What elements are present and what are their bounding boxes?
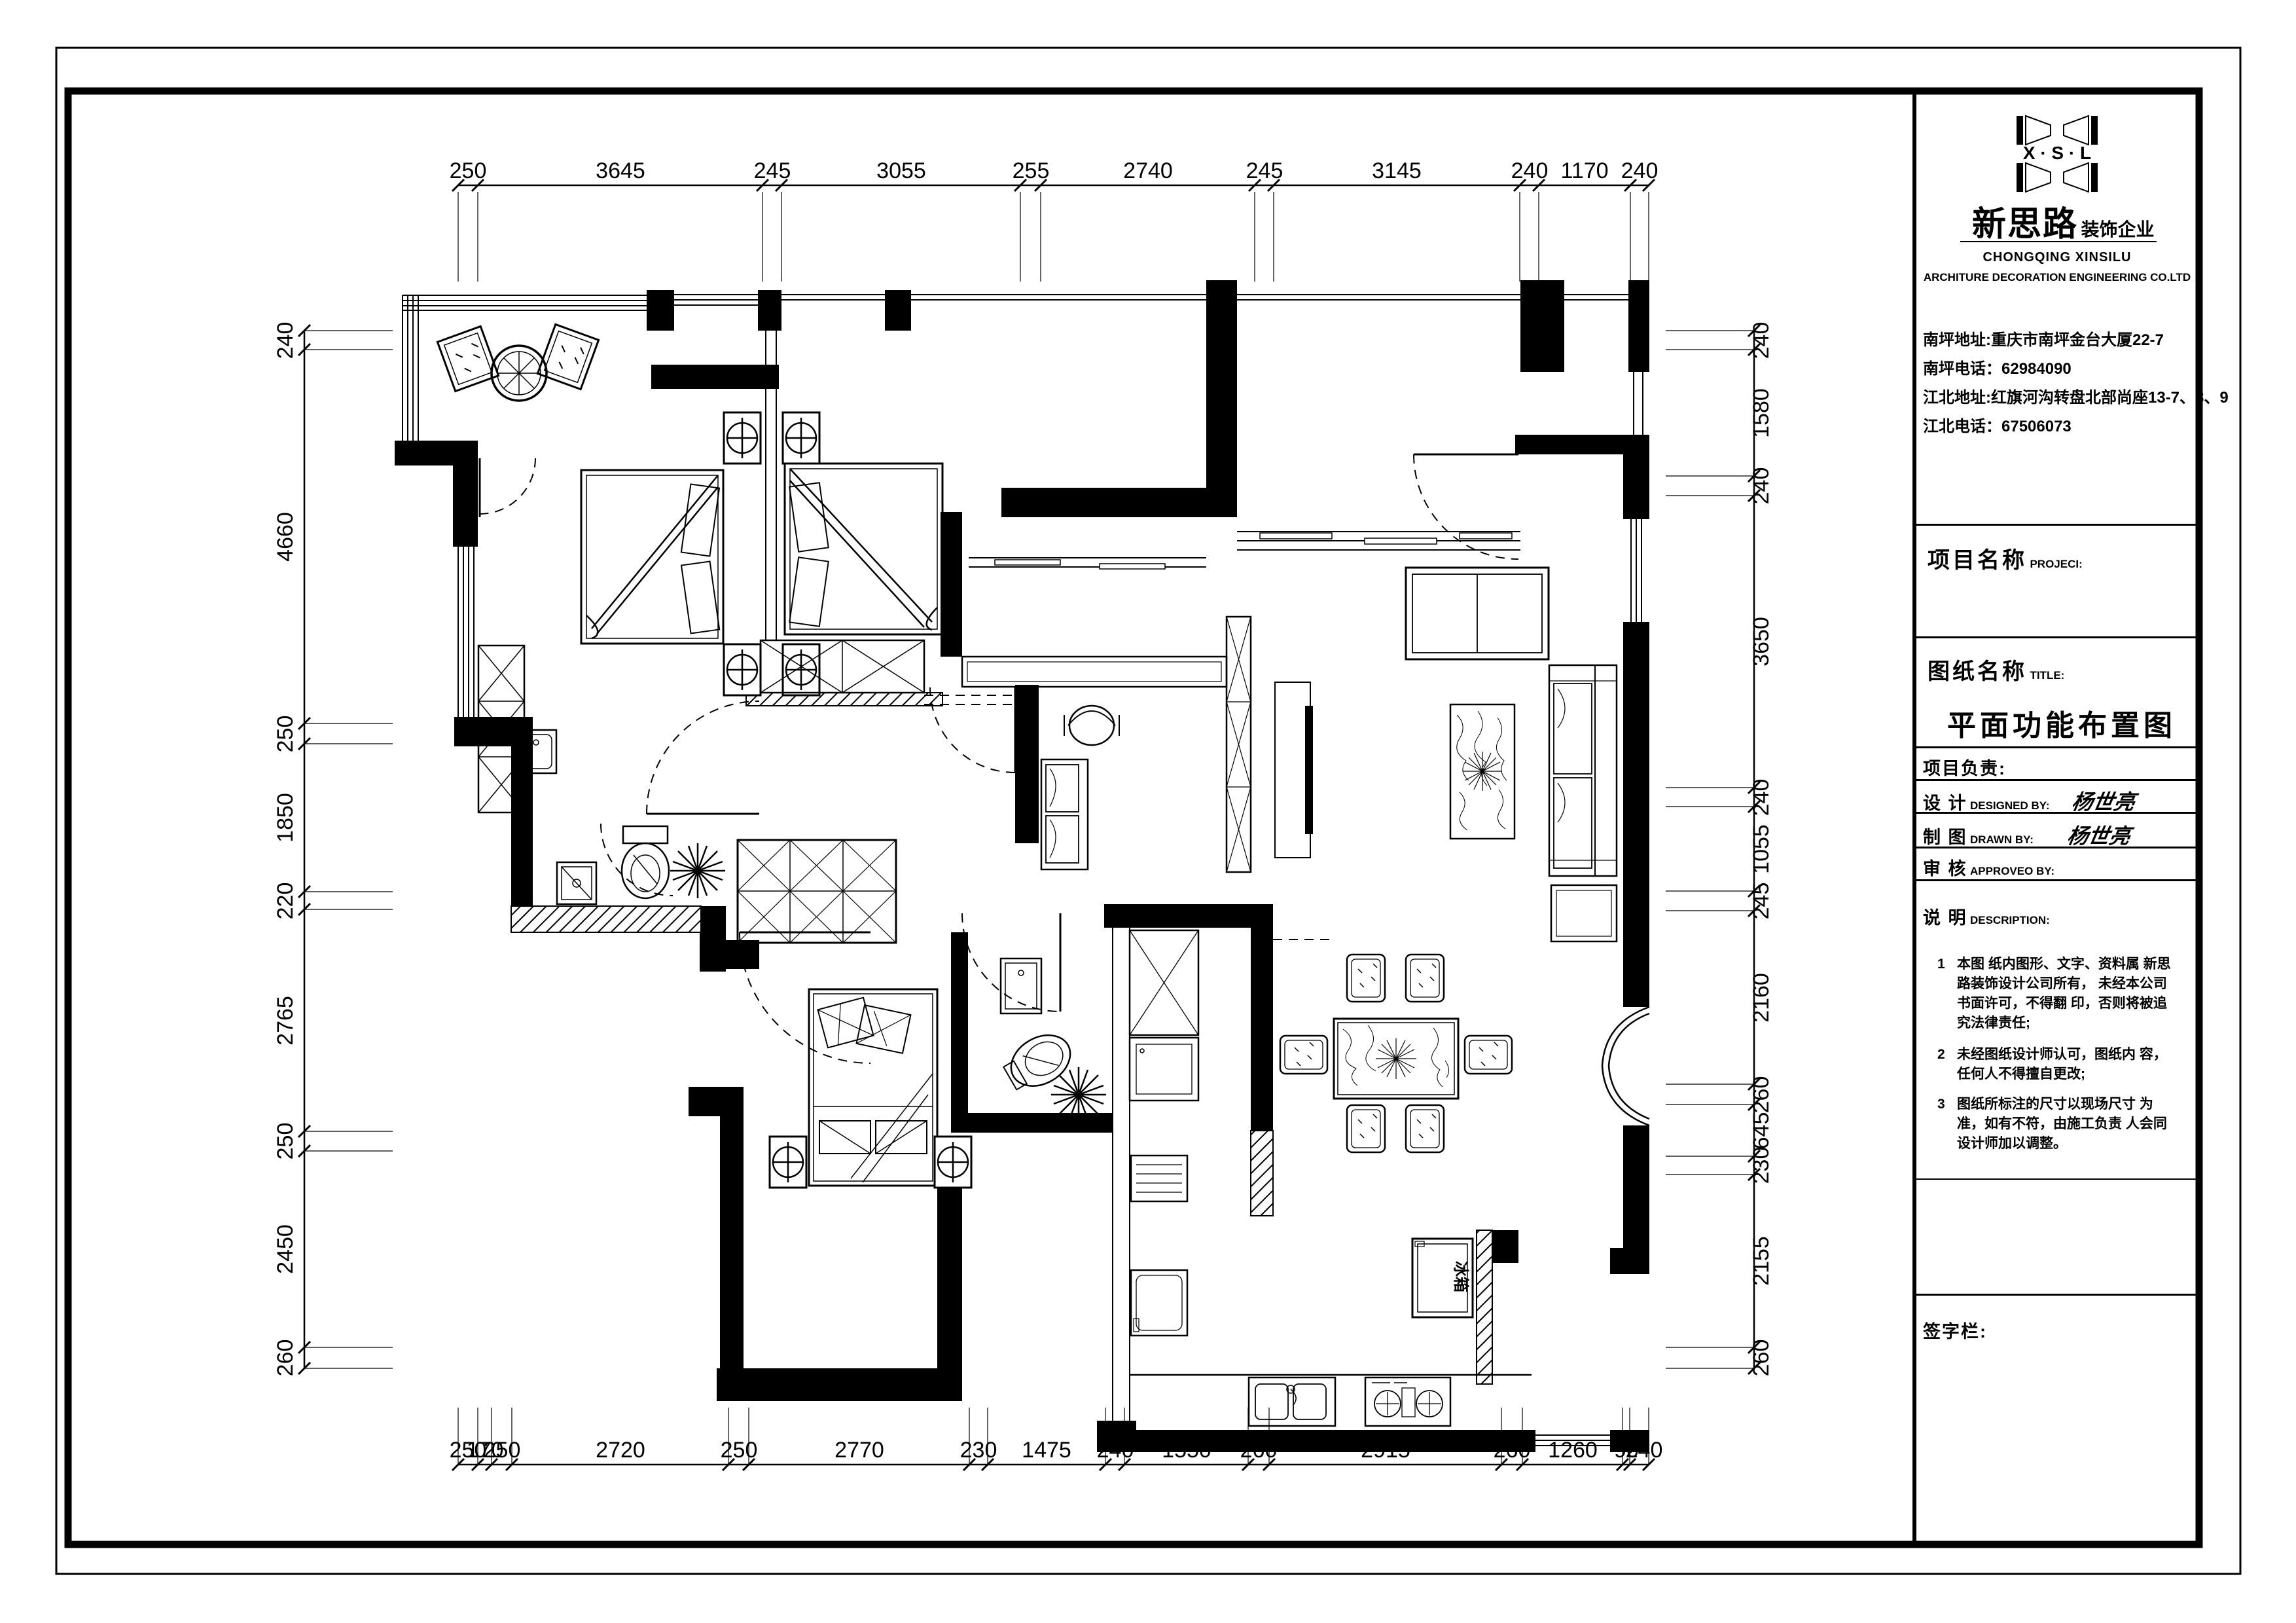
dim-right-6: 245 — [1749, 883, 1774, 920]
dim-right-1: 1580 — [1749, 388, 1774, 438]
kitchen-cabinets — [1130, 930, 1532, 1375]
dim-right-0: 240 — [1749, 322, 1774, 359]
description-header: 说 明 DESCRIPTION: — [1923, 903, 2050, 929]
dimension-text-top: 250 3645 245 3055 255 2740 245 3145 240 … — [450, 158, 1659, 183]
balcony-round-table — [492, 346, 547, 401]
corridor-closet — [738, 840, 896, 943]
dimension-text-left: 240 4660 250 1850 220 2765 250 2450 260 — [273, 322, 298, 1377]
drawn-label-en: DRAWN BY: — [1970, 833, 2034, 846]
dim-top-5: 2740 — [1123, 158, 1173, 183]
bed-1 — [581, 470, 723, 644]
dim-left-3: 1850 — [273, 793, 298, 843]
dim-right-9: 645 — [1749, 1112, 1774, 1150]
company-name-row: 新思路 装饰企业 — [1972, 196, 2154, 246]
bathroom1-shower — [557, 862, 596, 904]
xsl-logo-icon: X · S · L — [2005, 115, 2109, 193]
approved-label: 审 核 — [1923, 859, 1967, 879]
bathroom1-toilet — [622, 826, 669, 898]
dim-left-2: 250 — [273, 716, 298, 753]
dim-left-6: 250 — [273, 1123, 298, 1160]
description-note: 1 本图 纸内图形、文字、资料属 新思路装饰设计公司所有， 未经本公司书面许可，… — [1937, 955, 2178, 1033]
bed-2 — [785, 464, 942, 634]
fridge-label: 冰箱 — [1452, 1261, 1470, 1292]
note-number: 2 — [1937, 1045, 1957, 1084]
drawn-label: 制 图 — [1923, 828, 1967, 847]
living-sofa — [1549, 665, 1617, 876]
note-text: 图纸所标注的尺寸以现场尺寸 为准，如有不符，由施工负责 人会同设计师加以调整。 — [1957, 1095, 2178, 1154]
plant-icon — [670, 843, 725, 898]
description-note: 2 未经图纸设计师认可，图纸内 容，任何人不得擅自更改; — [1937, 1045, 2178, 1084]
dim-bot-13: 1260 — [1548, 1438, 1598, 1463]
dim-bot-4: 250 — [721, 1438, 758, 1463]
dim-right-4: 240 — [1749, 779, 1774, 816]
dim-bot-3: 2720 — [596, 1438, 645, 1463]
dim-right-2: 240 — [1749, 467, 1774, 505]
plant-icon — [1051, 1067, 1106, 1122]
dim-top-7: 3145 — [1372, 158, 1422, 183]
company-suffix-cn: 装饰企业 — [2081, 219, 2154, 240]
walls-hatched — [511, 693, 1492, 1384]
dim-top-10: 240 — [1621, 158, 1659, 183]
bathroom2-sink — [1001, 958, 1041, 1013]
contact-line: 南坪电话：62984090 — [1923, 356, 2072, 382]
signature-label: 签字栏: — [1923, 1317, 1987, 1343]
contact-line: 江北地址:红旗河沟转盘北部尚座13-7、8、9 — [1923, 385, 2229, 411]
dim-left-7: 2450 — [273, 1224, 298, 1274]
sofa-side-table — [1551, 885, 1617, 941]
company-name-cn: 新思路 — [1972, 206, 2078, 244]
tv-cabinet — [1275, 682, 1313, 858]
bathroom2-toilet — [999, 1025, 1079, 1099]
designed-label: 设 计 — [1923, 793, 1967, 813]
dim-left-4: 220 — [273, 883, 298, 920]
dim-bot-7: 1475 — [1022, 1438, 1071, 1463]
contact-line: 江北电话：67506073 — [1923, 414, 2072, 440]
designed-label-en: DESIGNED BY: — [1970, 799, 2050, 812]
dim-top-8: 240 — [1511, 158, 1549, 183]
dim-left-5: 2765 — [273, 996, 298, 1046]
nightstand — [724, 644, 761, 695]
tv-bookcase — [1227, 617, 1251, 872]
contact-line: 南坪地址:重庆市南坪金台大厦22-7 — [1923, 327, 2164, 354]
study-chair — [1064, 706, 1119, 745]
description-note: 3 图纸所标注的尺寸以现场尺寸 为准，如有不符，由施工负责 人会同设计师加以调整… — [1937, 1095, 2178, 1154]
sheet-border — [56, 48, 2240, 1574]
dim-right-5: 1055 — [1749, 824, 1774, 874]
dim-right-10: 230 — [1749, 1147, 1774, 1184]
drawing-sheet: 250 3645 245 3055 255 2740 245 3145 240 … — [0, 0, 2296, 1623]
dim-right-11: 2155 — [1749, 1236, 1774, 1286]
note-text: 本图 纸内图形、文字、资料属 新思路装饰设计公司所有， 未经本公司书面许可，不得… — [1957, 955, 2178, 1033]
dim-bot-5: 2770 — [834, 1438, 884, 1463]
dim-top-2: 245 — [754, 158, 791, 183]
description-label-en: DESCRIPTION: — [1970, 914, 2050, 926]
dim-bot-2: 250 — [484, 1438, 521, 1463]
kitchen-stove — [1365, 1377, 1450, 1426]
note-number: 3 — [1937, 1095, 1957, 1154]
study-desk — [962, 657, 1227, 687]
dim-right-3: 3650 — [1749, 617, 1774, 666]
nightstand — [783, 644, 819, 695]
drawn-row: 制 图 DRAWN BY: 杨世亮 — [1923, 820, 2130, 850]
xsl-initials: X · S · L — [2023, 143, 2091, 163]
drawing-title: 平面功能布置图 — [1947, 702, 2176, 744]
dim-top-3: 3055 — [876, 158, 926, 183]
dim-right-12: 260 — [1749, 1340, 1774, 1377]
balcony-chair-left — [437, 326, 498, 391]
project-row: 项目名称 PROJECI: — [1928, 542, 2083, 574]
living-rug — [1450, 704, 1515, 839]
dim-top-0: 250 — [450, 158, 487, 183]
dimension-text-right: 240 1580 240 3650 240 1055 245 2160 260 … — [1749, 322, 1774, 1377]
draftsman-name: 杨世亮 — [2065, 820, 2133, 850]
door-swings — [480, 454, 1518, 1063]
entry-cabinet — [1406, 568, 1549, 659]
bed-3 — [809, 989, 937, 1186]
approved-row: 审 核 APPROVEO BY: — [1923, 854, 2054, 880]
kitchen-sink — [1249, 1377, 1335, 1426]
company-name-en2: ARCHITURE DECORATION ENGINEERING CO.LTD — [1924, 271, 2191, 284]
company-name-en: CHONGQING XINSILU — [1982, 250, 2131, 265]
dim-top-4: 255 — [1013, 158, 1050, 183]
sheet-name-row: 图纸名称 TITLE: — [1928, 653, 2064, 685]
dim-bot-6: 230 — [960, 1438, 997, 1463]
note-text: 未经图纸设计师认可，图纸内 容，任何人不得擅自更改; — [1957, 1045, 2178, 1084]
nightstand — [935, 1137, 971, 1188]
dim-right-7: 2160 — [1749, 973, 1774, 1023]
dim-right-8: 260 — [1749, 1076, 1774, 1114]
dim-top-6: 245 — [1246, 158, 1283, 183]
dim-left-1: 4660 — [273, 512, 298, 562]
manager-label: 项目负责: — [1923, 754, 2006, 780]
dim-top-1: 3645 — [596, 158, 645, 183]
dim-top-9: 1170 — [1560, 158, 1608, 183]
dining-table — [1334, 1019, 1458, 1099]
dim-left-0: 240 — [273, 322, 298, 359]
study-loveseat — [1041, 759, 1088, 869]
sheet-name-label-en: TITLE: — [2030, 669, 2064, 682]
note-number: 1 — [1937, 955, 1957, 1033]
sheet-name-label: 图纸名称 — [1928, 659, 2027, 684]
project-label: 项目名称 — [1928, 548, 2027, 573]
project-label-en: PROJECI: — [2030, 558, 2082, 570]
nightstand — [724, 412, 761, 464]
dim-left-8: 260 — [273, 1340, 298, 1377]
approved-label-en: APPROVEO BY: — [1970, 865, 2054, 877]
nightstand — [770, 1137, 806, 1188]
nightstand — [783, 412, 819, 464]
description-label: 说 明 — [1923, 908, 1967, 928]
